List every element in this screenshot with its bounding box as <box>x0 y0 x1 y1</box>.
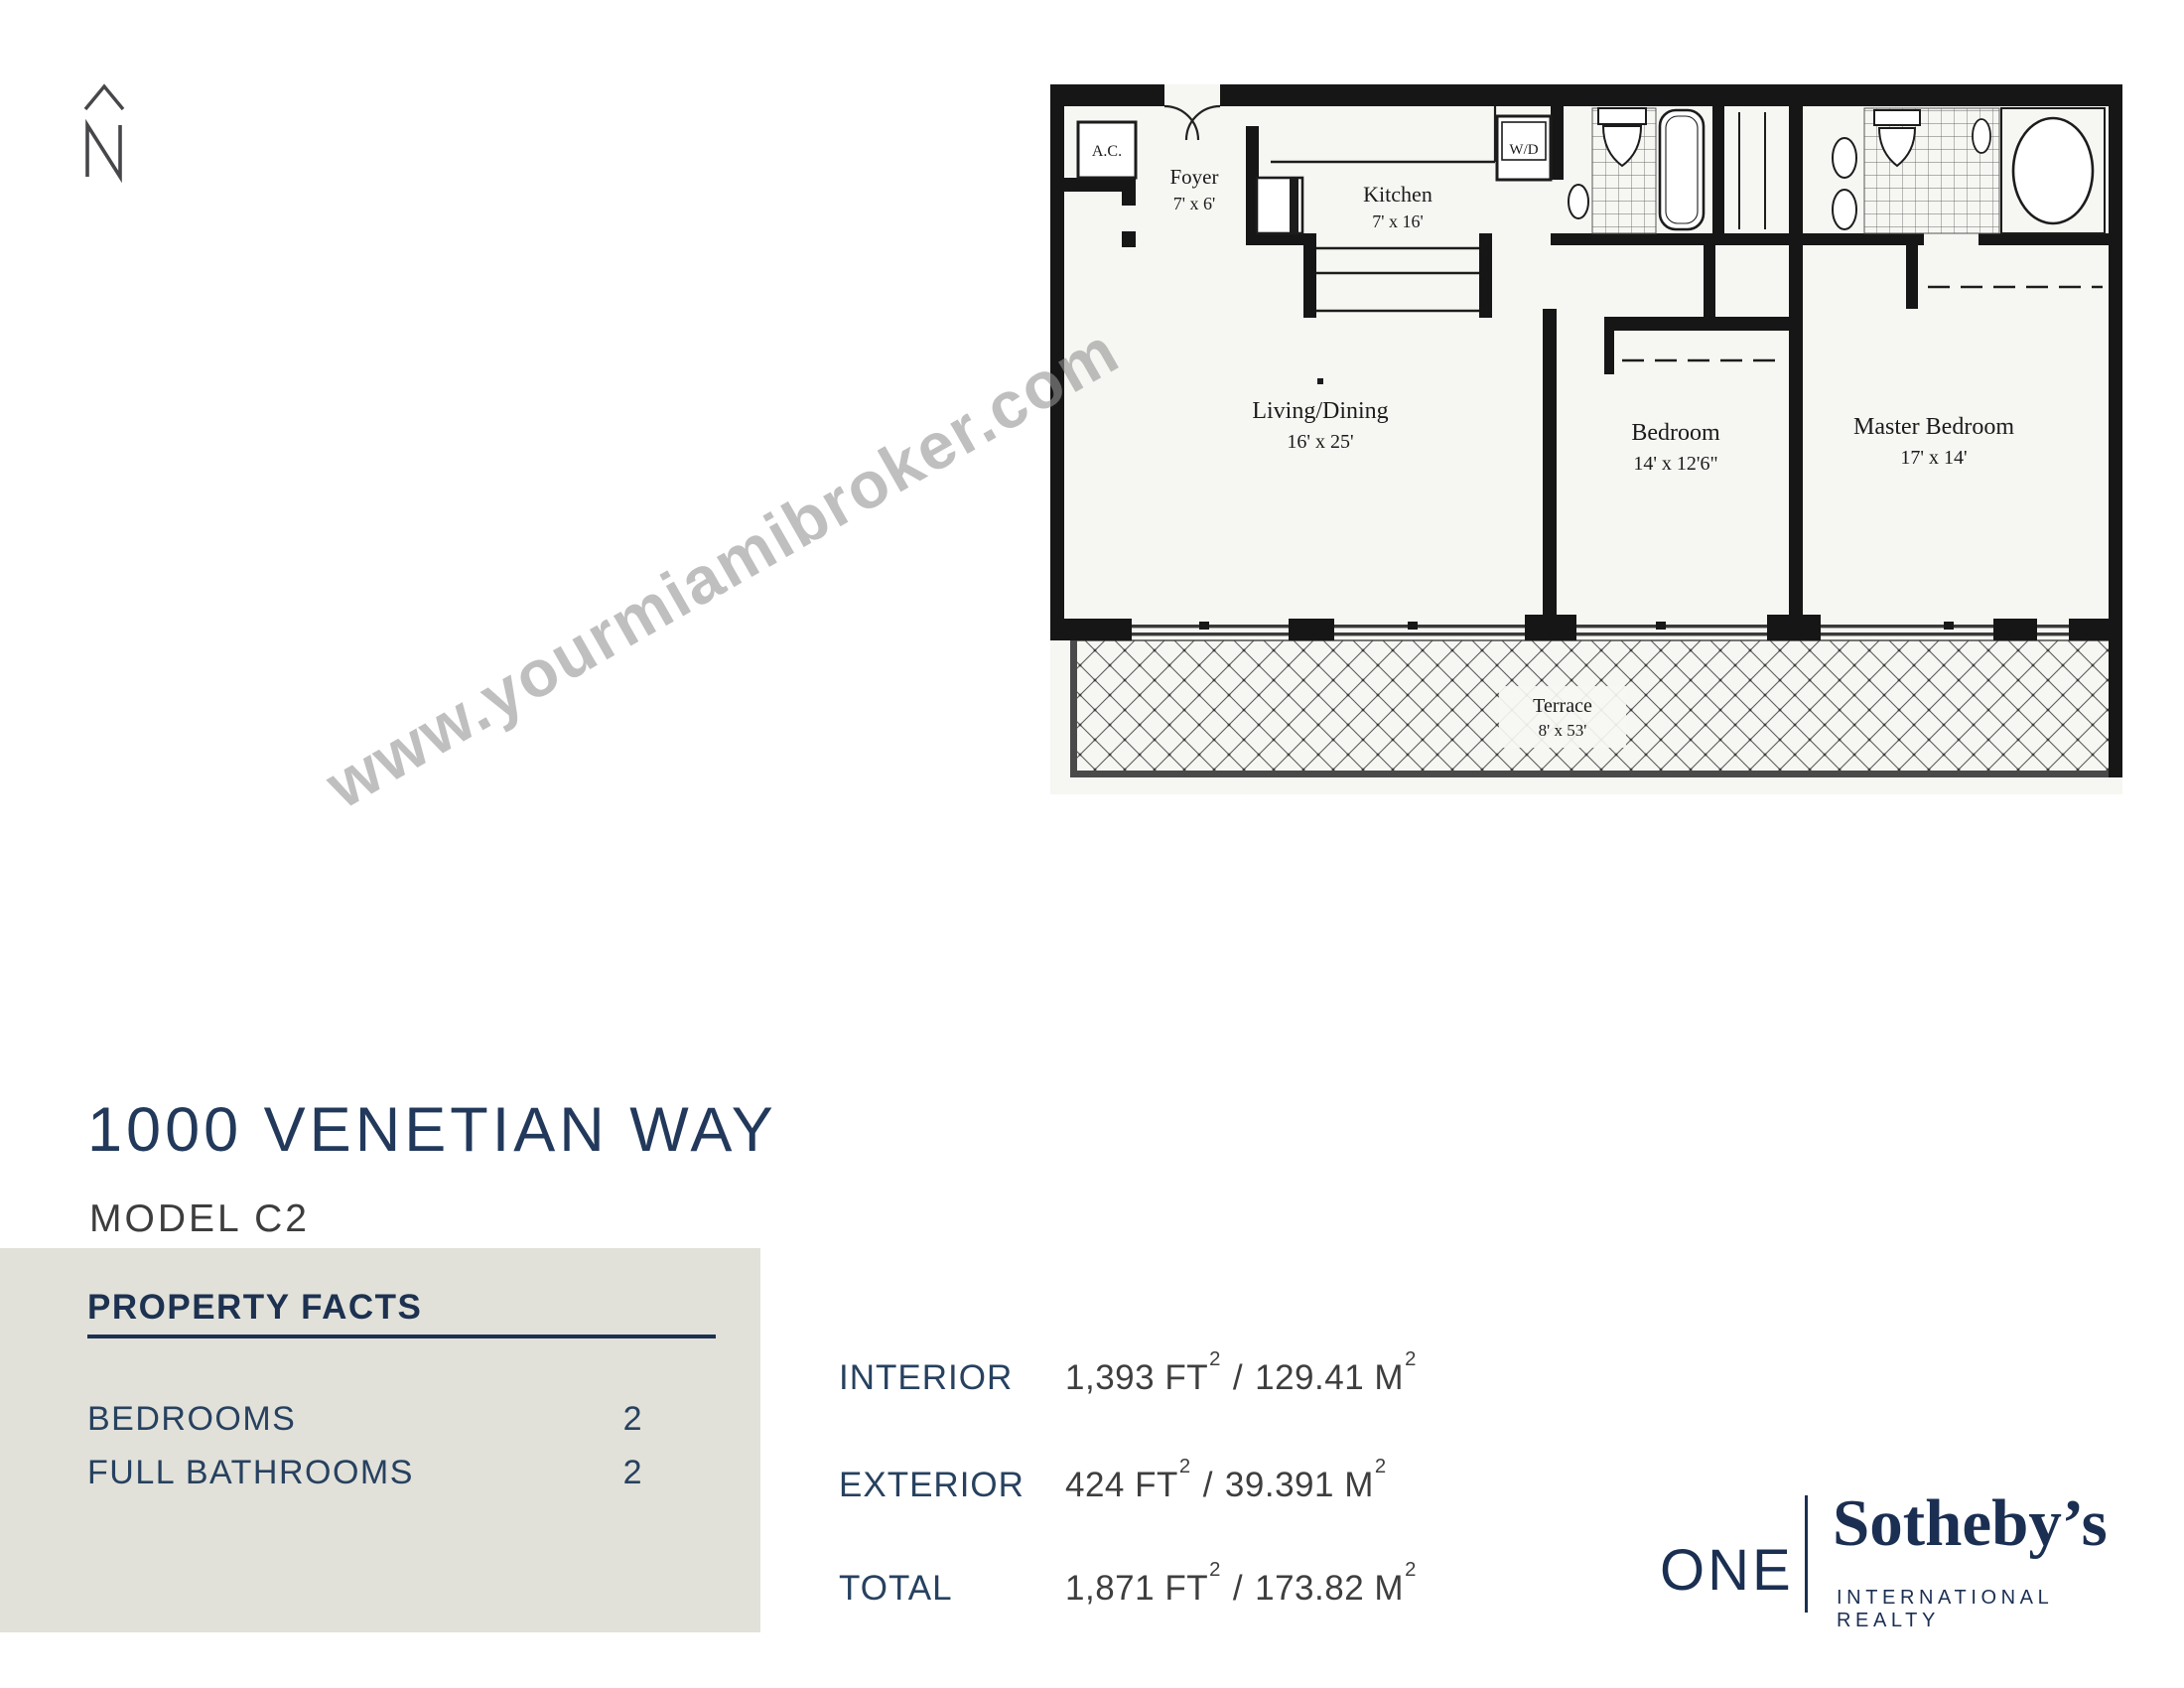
room-dim-terrace: 8' x 53' <box>1539 721 1587 740</box>
brand-divider <box>1805 1495 1808 1613</box>
room-dim-foyer: 7' x 6' <box>1173 194 1216 213</box>
room-label-terrace: Terrace <box>1533 695 1592 717</box>
room-dim-master: 17' x 14' <box>1900 447 1967 469</box>
room-label-kitchen: Kitchen <box>1363 182 1433 207</box>
room-dim-bedroom: 14' x 12'6" <box>1633 453 1717 475</box>
measurement-label: TOTAL <box>839 1569 1065 1609</box>
brand-one: ONE <box>1660 1537 1794 1604</box>
property-facts-underline <box>87 1335 716 1338</box>
floor-plan-image: A.C. Foyer 7' x 6' Kitchen 7' x 16' W/D … <box>1050 84 2122 794</box>
listing-title: 1000 VENETIAN WAY <box>87 1094 777 1166</box>
fact-value: 2 <box>623 1454 643 1492</box>
room-label-ac: A.C. <box>1092 143 1122 160</box>
measurement-label: EXTERIOR <box>839 1466 1065 1505</box>
north-arrow-icon <box>64 70 143 189</box>
measurement-value: 1,871 FT2/173.82 M2 <box>1065 1569 1417 1609</box>
room-label-foyer: Foyer <box>1170 165 1219 189</box>
north-indicator <box>64 70 143 189</box>
fact-value: 2 <box>623 1400 643 1439</box>
floor-plan-svg: A.C. Foyer 7' x 6' Kitchen 7' x 16' W/D … <box>1050 84 2122 794</box>
room-label-living: Living/Dining <box>1252 398 1388 424</box>
fact-label: FULL BATHROOMS <box>87 1454 414 1492</box>
brand-lockup: ONE Sotheby’s INTERNATIONAL REALTY <box>1660 1485 2136 1634</box>
measurement-row-interior: INTERIOR 1,393 FT2/129.41 M2 <box>839 1358 1417 1398</box>
measurement-label: INTERIOR <box>839 1358 1065 1398</box>
measurement-row-total: TOTAL 1,871 FT2/173.82 M2 <box>839 1569 1417 1609</box>
room-dim-living: 16' x 25' <box>1287 431 1353 453</box>
property-facts-heading: PROPERTY FACTS <box>87 1288 422 1328</box>
measurement-value: 424 FT2/39.391 M2 <box>1065 1466 1387 1505</box>
bathroom-2 <box>1833 108 2105 233</box>
brand-name: Sotheby’s <box>1833 1485 2108 1562</box>
measurement-row-exterior: EXTERIOR 424 FT2/39.391 M2 <box>839 1466 1387 1505</box>
page: { "north_indicator": {"letter": "N"}, "w… <box>0 0 2184 1688</box>
fact-label: BEDROOMS <box>87 1400 296 1439</box>
room-label-wd: W/D <box>1509 142 1538 158</box>
brand-tagline: INTERNATIONAL REALTY <box>1837 1587 2136 1632</box>
watermark: www.yourmiamibroker.com <box>311 309 1134 828</box>
fact-row-full-bathrooms: FULL BATHROOMS 2 <box>87 1454 643 1492</box>
listing-model: MODEL C2 <box>89 1197 310 1241</box>
room-label-bedroom: Bedroom <box>1631 420 1720 446</box>
measurement-value: 1,393 FT2/129.41 M2 <box>1065 1358 1417 1398</box>
room-label-master: Master Bedroom <box>1853 414 2014 440</box>
room-dim-kitchen: 7' x 16' <box>1372 211 1424 231</box>
fact-row-bedrooms: BEDROOMS 2 <box>87 1400 643 1439</box>
